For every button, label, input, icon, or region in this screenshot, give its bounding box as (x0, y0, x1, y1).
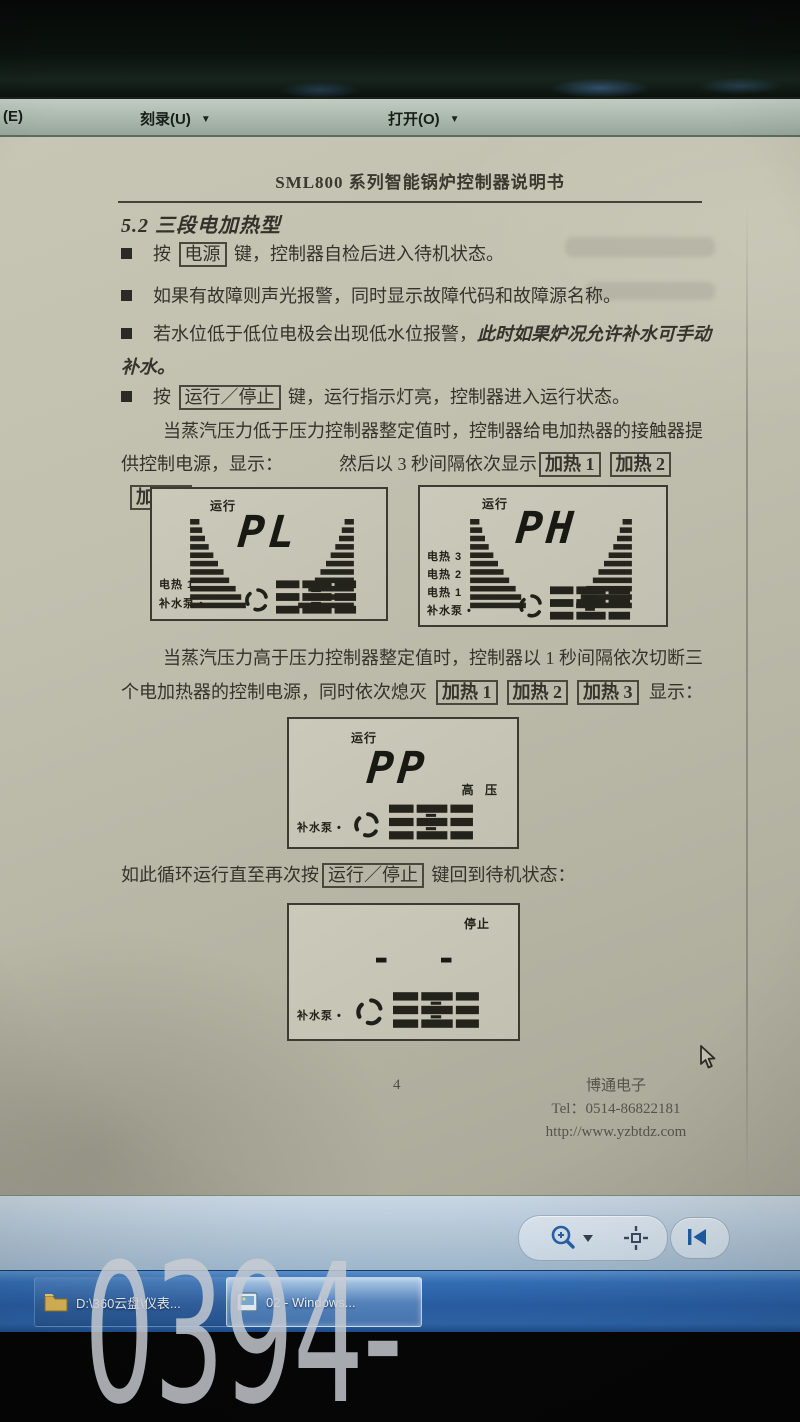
lcd-display-standby: 停止 - - 补水泵 • (287, 903, 520, 1041)
viewer-toolbar (0, 1195, 800, 1271)
lcd-display-pp: 运行 PP 高 压 补水泵 • (287, 717, 519, 849)
feedwater-pump-indicator: 补水泵 • (159, 595, 204, 611)
chevron-down-icon: ▼ (201, 114, 211, 125)
lcd-display-pl: 运行 PL 电热 1 补水泵 • (150, 487, 388, 621)
segment-bars-icon (276, 580, 358, 614)
heater1-indicator: 电热 1 (159, 576, 194, 592)
bullet-fault-alarm: 如果有故障则声光报警，同时显示故障代码和故障源名称。 (121, 280, 721, 313)
folder-icon (43, 1291, 69, 1313)
bullet-square-icon (121, 248, 132, 259)
heater1-indicator: 电热 1 (427, 584, 462, 600)
lcd-display-ph: 运行 PH 电热 3 电热 2 电热 1 补水泵 • (418, 485, 668, 627)
taskbar-button-label: 02 - Windows... (266, 1295, 356, 1310)
bullet-square-icon (121, 290, 132, 301)
heat1-box: 加热 1 (539, 452, 601, 477)
segment-bars-icon (389, 804, 475, 840)
lcd-value: PP (365, 743, 430, 794)
heat3-box: 加热 3 (577, 680, 639, 705)
bullet-square-icon (121, 328, 132, 339)
bullet-run-stop-key: 按 运行／停止 键，运行指示灯亮，控制器进入运行状态。 (121, 381, 721, 414)
header-rule (118, 201, 702, 203)
heat2-box: 加热 2 (610, 452, 672, 477)
footer-telephone: Tel：0514-86822181 (478, 1098, 754, 1121)
page-number: 4 (393, 1077, 401, 1094)
feedwater-pump-indicator: 补水泵 • (297, 819, 342, 835)
menu-item-burn-label: 刻录(U) (140, 111, 191, 128)
document-page: SML800 系列智能锅炉控制器说明书 5.2 三段电加热型 按 电源 键，控制… (0, 137, 800, 1195)
photo-viewer-icon (235, 1291, 259, 1313)
mouse-cursor (698, 1045, 720, 1071)
run-stop-key-box: 运行／停止 (179, 385, 281, 410)
viewer-menu-bar: (E) 刻录(U)▼ 打开(O)▼ (0, 97, 800, 137)
high-pressure-indicator: 高 压 (462, 781, 501, 798)
paragraph-high-pressure-line2: 个电加热器的控制电源，同时依次熄灭加热 1加热 2加热 3 显示： (121, 676, 721, 709)
fan-icon (244, 587, 270, 613)
menu-item-open[interactable]: 打开(O)▼ (388, 108, 460, 129)
bullet-low-water: 若水位低于低位电极会出现低水位报警，此时如果炉况允许补水可手动补水。 (121, 318, 721, 384)
lcd-stop-label: 停止 (464, 915, 490, 932)
previous-image-icon[interactable] (684, 1225, 710, 1249)
bullet-square-icon (121, 391, 132, 402)
document-title: SML800 系列智能锅炉控制器说明书 (90, 168, 750, 193)
feedwater-pump-indicator: 补水泵 • (427, 602, 472, 618)
run-stop-key-box: 运行／停止 (322, 863, 424, 888)
footer-company: 博通电子 (478, 1075, 754, 1098)
segment-bars-icon (393, 991, 481, 1029)
fan-icon (353, 811, 381, 839)
taskbar-button-folder[interactable]: D:\360云盘\仪表... (34, 1277, 240, 1327)
lcd-value: - - (371, 939, 468, 979)
feedwater-pump-indicator: 补水泵 • (297, 1007, 342, 1023)
heat2-box: 加热 2 (507, 680, 569, 705)
menu-item-burn[interactable]: 刻录(U)▼ (140, 108, 211, 129)
loop-statement: 如此循环运行直至再次按运行／停止 键回到待机状态： (121, 859, 721, 892)
fan-icon (355, 997, 385, 1027)
segment-bars-icon (550, 586, 632, 620)
monitor-bottom-bezel (0, 1332, 800, 1422)
paragraph-high-pressure-line1: 当蒸汽压力高于压力控制器整定值时，控制器以 1 秒间隔依次切断三 (121, 642, 721, 675)
taskbar: D:\360云盘\仪表... 02 - Windows... (0, 1270, 800, 1333)
actual-size-icon[interactable] (622, 1224, 650, 1252)
page-crease (746, 207, 748, 1187)
menu-item-email-fragment[interactable]: (E) (3, 108, 23, 125)
heater2-indicator: 电热 2 (427, 566, 462, 582)
zoom-magnifier-icon[interactable] (548, 1223, 578, 1253)
footer-website: http://www.yzbtdz.com (478, 1121, 754, 1144)
menu-item-open-label: 打开(O) (388, 111, 440, 128)
taskbar-button-photo-viewer[interactable]: 02 - Windows... (226, 1277, 422, 1327)
lcd-run-label: 运行 (482, 495, 508, 512)
heater3-indicator: 电热 3 (427, 548, 462, 564)
monitor-top-bezel (0, 0, 800, 97)
chevron-down-icon: ▼ (450, 114, 460, 125)
bullet-power-key: 按 电源 键，控制器自检后进入待机状态。 (121, 238, 721, 271)
lcd-run-label: 运行 (210, 497, 236, 514)
paragraph-low-pressure-line1: 当蒸汽压力低于压力控制器整定值时，控制器给电加热器的接触器提 (121, 415, 721, 448)
photographed-screen: (E) 刻录(U)▼ 打开(O)▼ SML800 系列智能锅炉控制器说明书 5.… (0, 0, 800, 1422)
fan-icon (518, 593, 544, 619)
power-key-box: 电源 (179, 242, 227, 267)
heat1-box: 加热 1 (436, 680, 498, 705)
section-heading: 5.2 三段电加热型 (121, 209, 281, 238)
taskbar-button-label: D:\360云盘\仪表... (76, 1293, 181, 1312)
zoom-dropdown-icon[interactable] (582, 1233, 594, 1243)
